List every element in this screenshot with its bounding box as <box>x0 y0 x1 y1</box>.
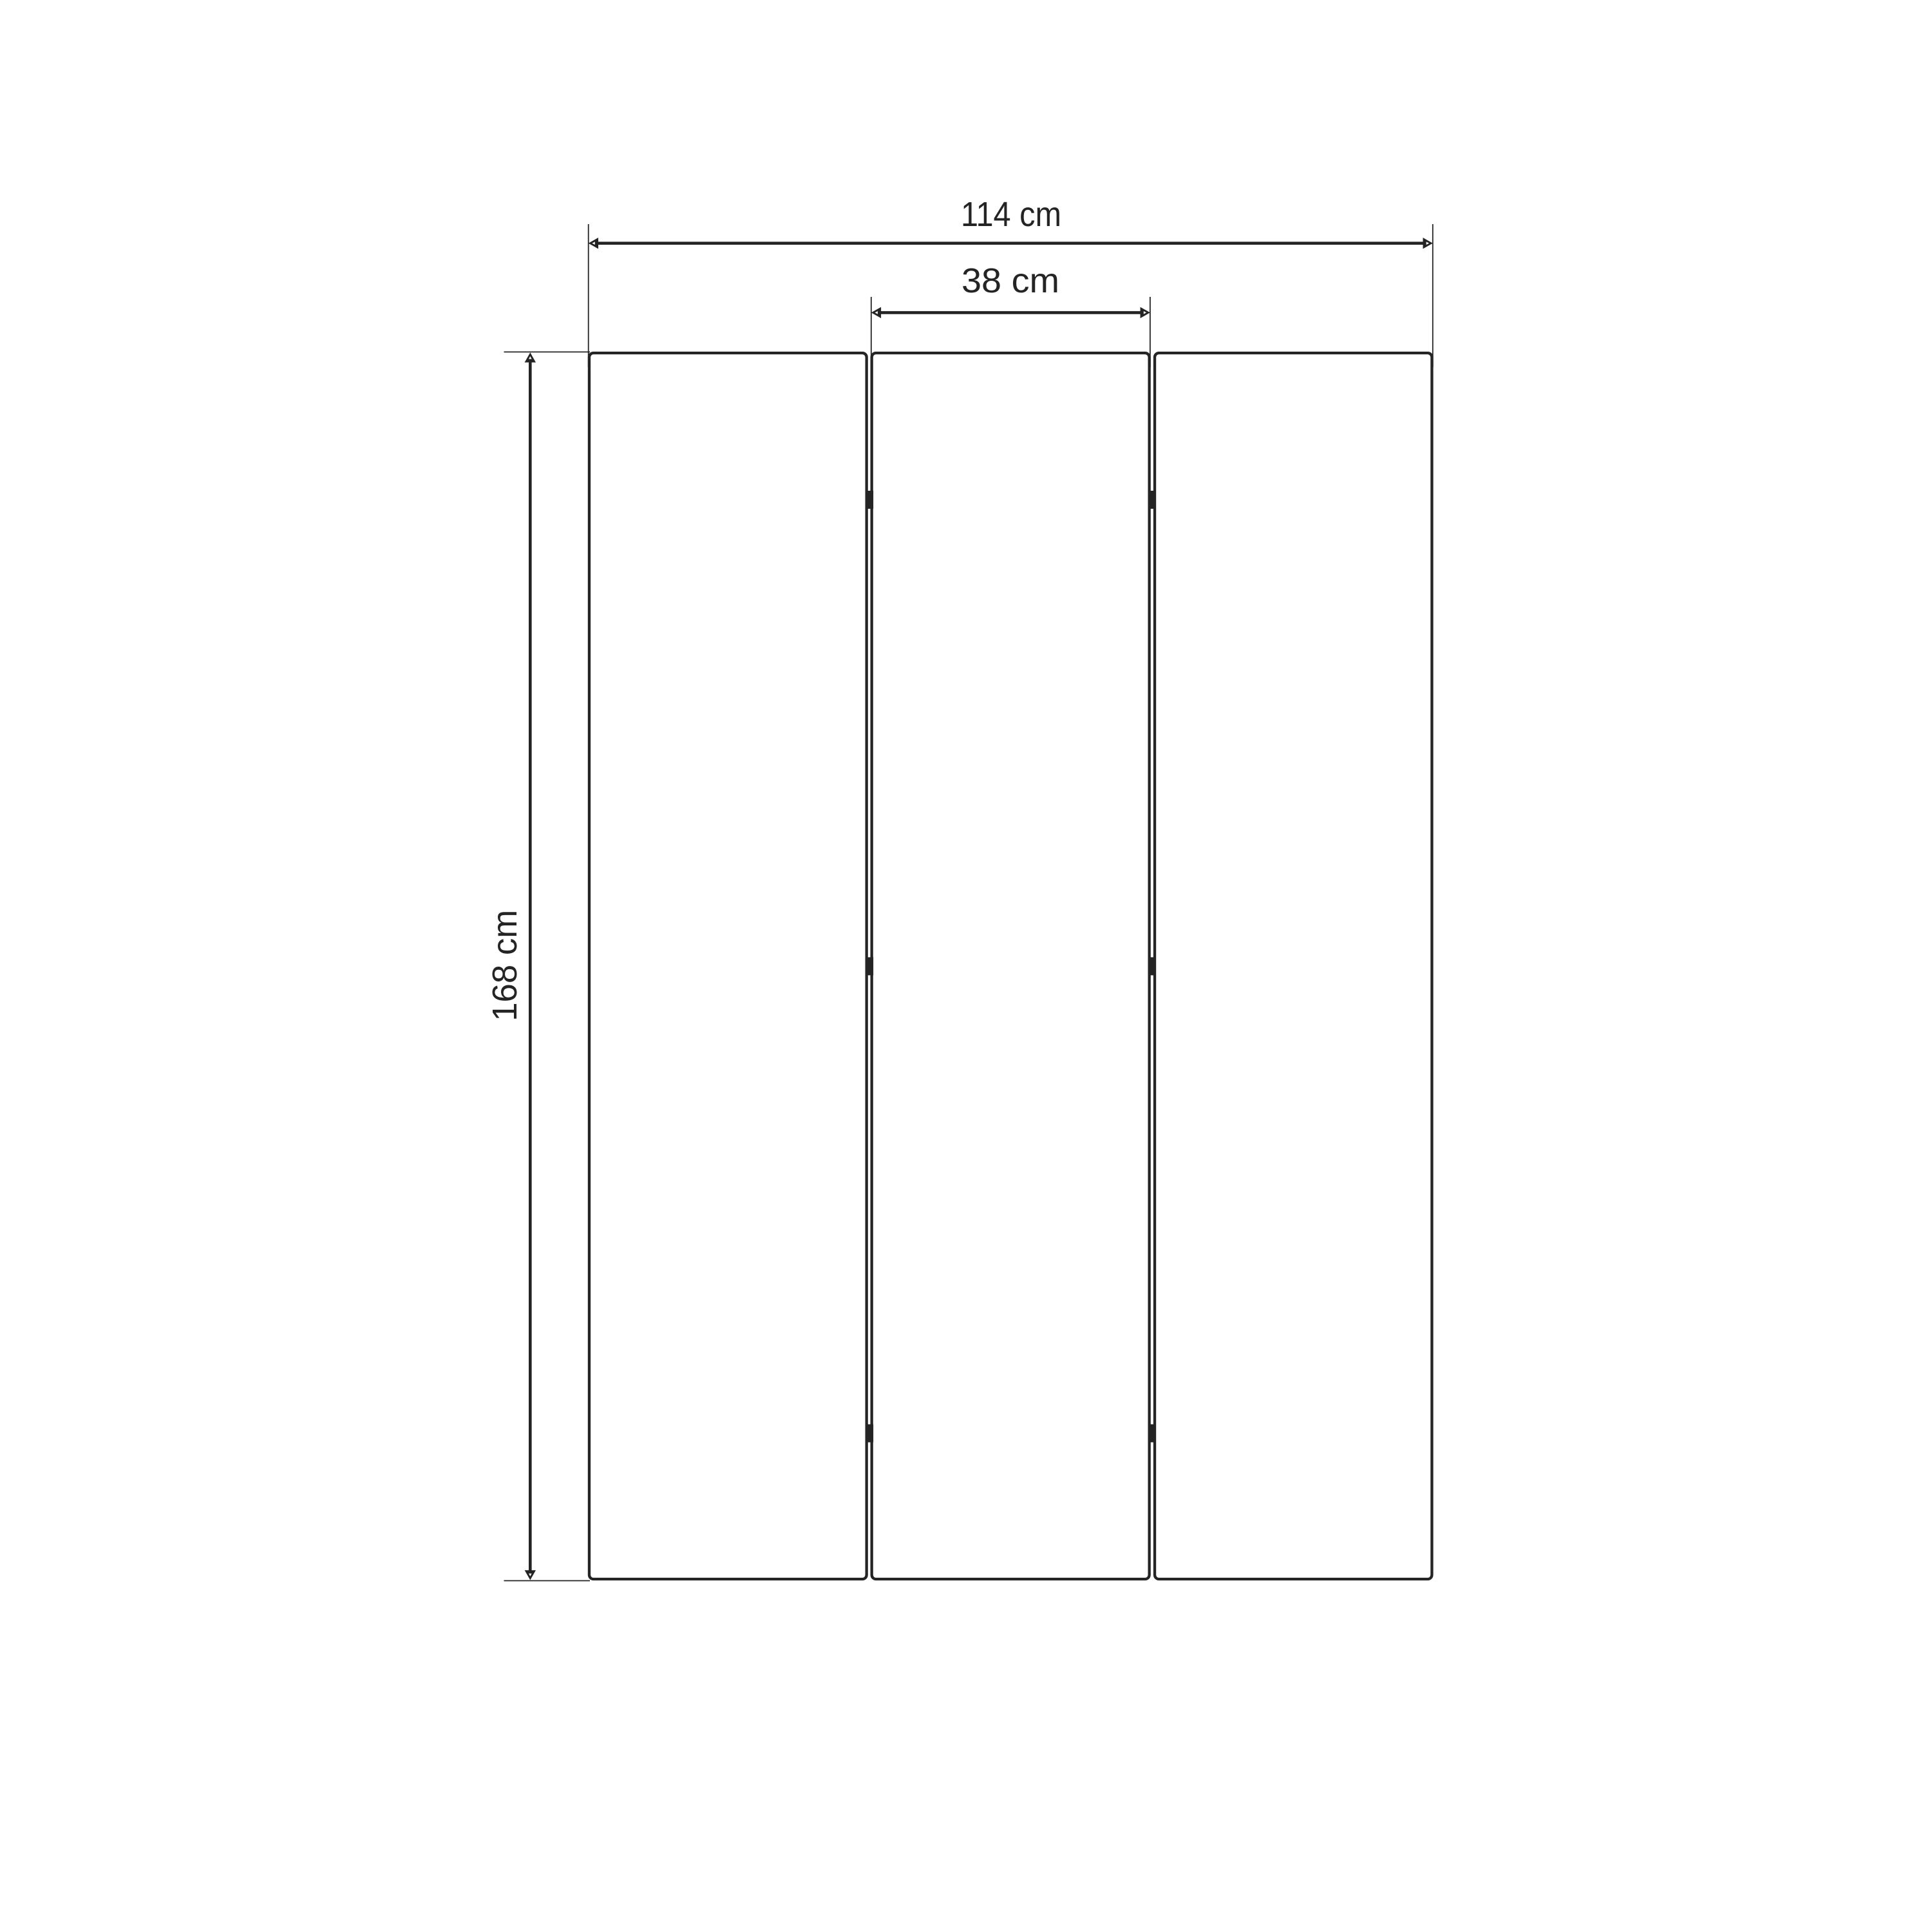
svg-text:168 cm: 168 cm <box>486 910 524 1021</box>
svg-text:114 cm: 114 cm <box>961 196 1061 234</box>
svg-text:38 cm: 38 cm <box>961 262 1059 300</box>
